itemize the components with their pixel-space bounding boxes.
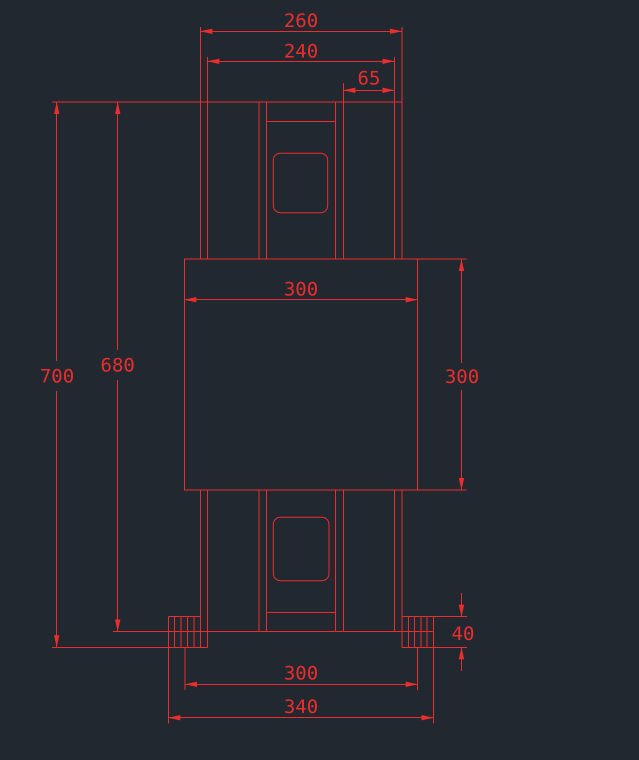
arrowhead	[200, 29, 212, 34]
rounded-opening	[273, 517, 329, 580]
dim-base-inner-width[interactable]: 300	[185, 647, 418, 690]
dimension-text-top-inner: 240	[284, 41, 318, 63]
dimension-text-block-width: 300	[284, 279, 318, 301]
dim-top-outer-width[interactable]: 260	[200, 10, 402, 34]
arrowhead	[459, 647, 464, 659]
arrowhead	[54, 102, 59, 114]
arrowhead	[168, 715, 180, 720]
dim-block-height[interactable]: 300	[445, 259, 479, 490]
dimension-text-block-height: 300	[445, 366, 479, 388]
arrowhead	[390, 29, 402, 34]
dimension-text-base-outer: 340	[284, 696, 318, 718]
arrowhead	[184, 297, 196, 302]
arrowhead	[383, 59, 395, 64]
arrowhead	[406, 682, 418, 687]
arrowhead	[54, 635, 59, 647]
dim-top-inner-width[interactable]: 240	[207, 41, 394, 65]
arrowhead	[459, 259, 464, 271]
arrowhead	[459, 478, 464, 490]
rounded-opening	[273, 153, 327, 213]
arrowhead	[422, 715, 434, 720]
part-bottom-section[interactable]	[113, 490, 434, 647]
dimension-text-foot-height: 40	[452, 623, 475, 645]
dimension-text-overall-height: 700	[40, 366, 74, 388]
cad-canvas[interactable]: 260 240 65 700 680 300	[0, 0, 639, 760]
arrowhead	[115, 620, 120, 632]
arrowhead	[207, 59, 219, 64]
arrowhead	[115, 102, 120, 114]
dim-top-offset[interactable]: 65	[343, 68, 394, 94]
dim-foot-height[interactable]: 40	[452, 593, 475, 671]
dimension-text-body-height: 680	[101, 355, 135, 377]
dimension-text-base-inner: 300	[284, 663, 318, 685]
dimension-text-top-outer: 260	[284, 10, 318, 32]
dim-base-outer-width[interactable]: 340	[168, 647, 433, 723]
dimension-text-top-offset: 65	[358, 68, 381, 90]
arrowhead	[459, 605, 464, 617]
dim-overall-height[interactable]: 700	[40, 102, 74, 647]
dim-body-height[interactable]: 680	[101, 102, 135, 632]
part-middle-block[interactable]	[184, 259, 466, 490]
arrowhead	[185, 682, 197, 687]
arrowhead	[383, 88, 395, 93]
arrowhead	[406, 297, 418, 302]
arrowhead	[343, 88, 355, 93]
dim-block-width[interactable]: 300	[184, 279, 417, 303]
